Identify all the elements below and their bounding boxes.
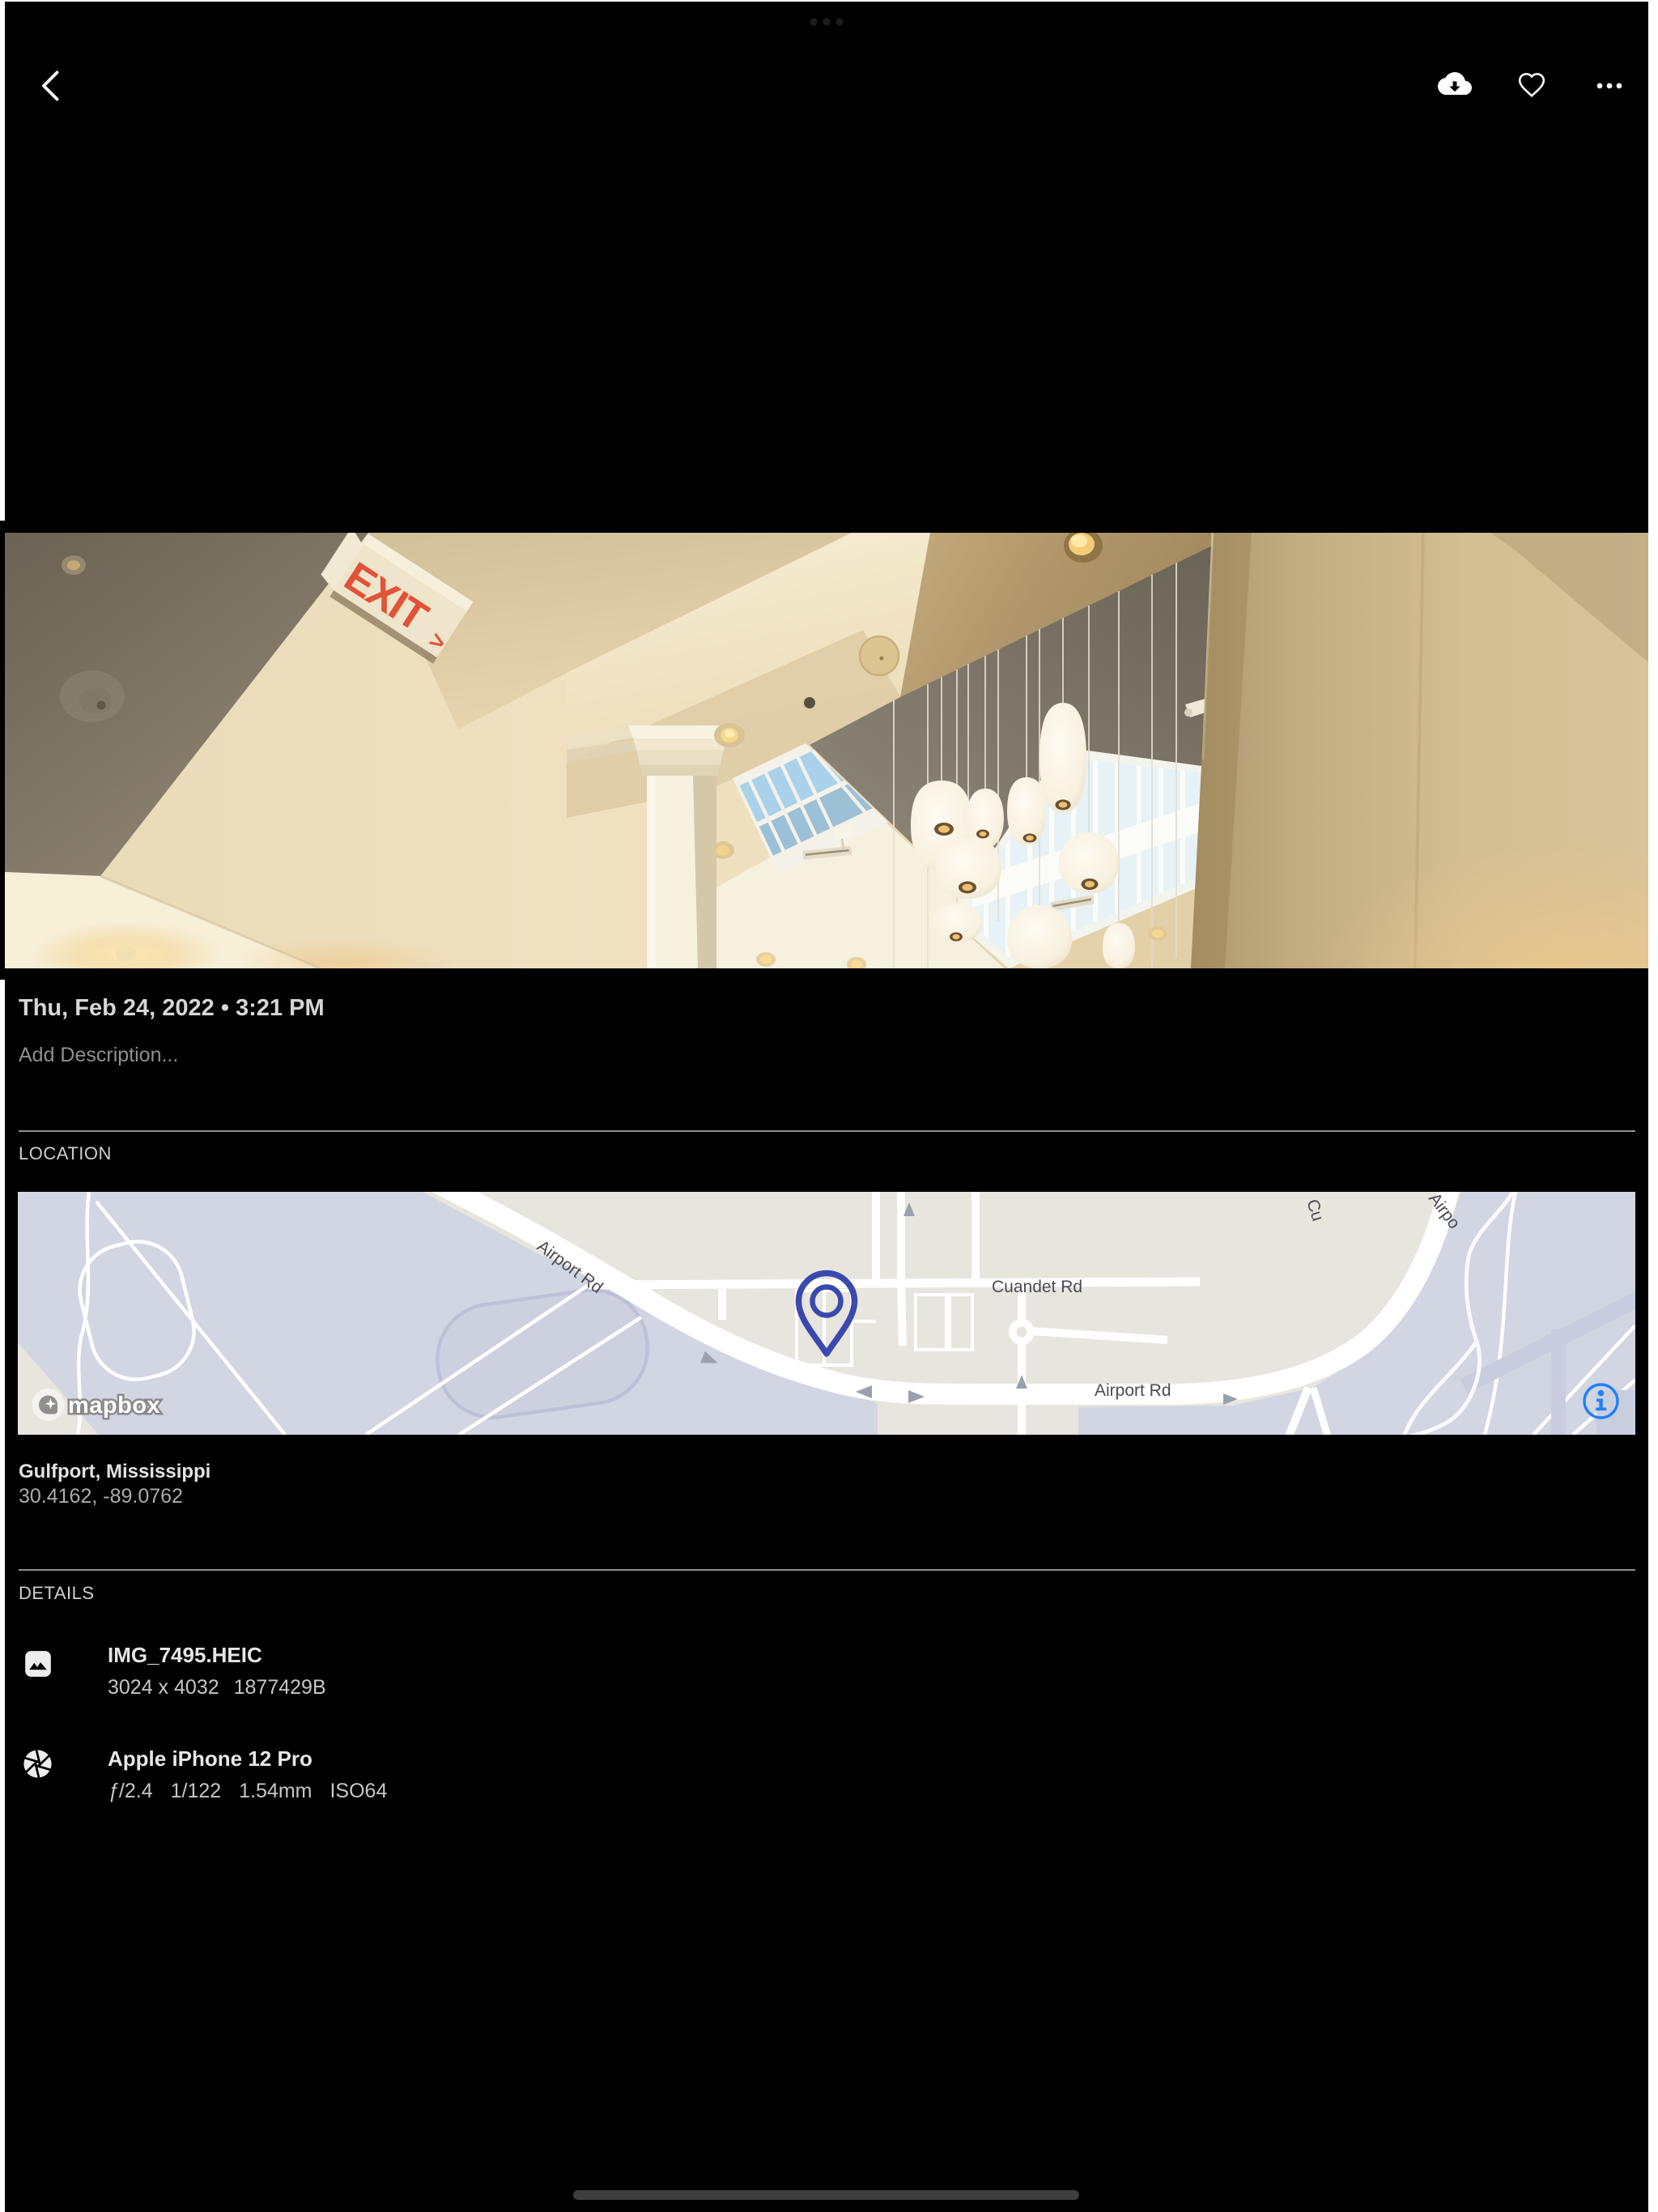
svg-text:Airport Rd: Airport Rd	[1095, 1381, 1171, 1400]
svg-text:mapbox: mapbox	[68, 1393, 160, 1419]
svg-text:Cuandet Rd: Cuandet Rd	[992, 1278, 1082, 1296]
